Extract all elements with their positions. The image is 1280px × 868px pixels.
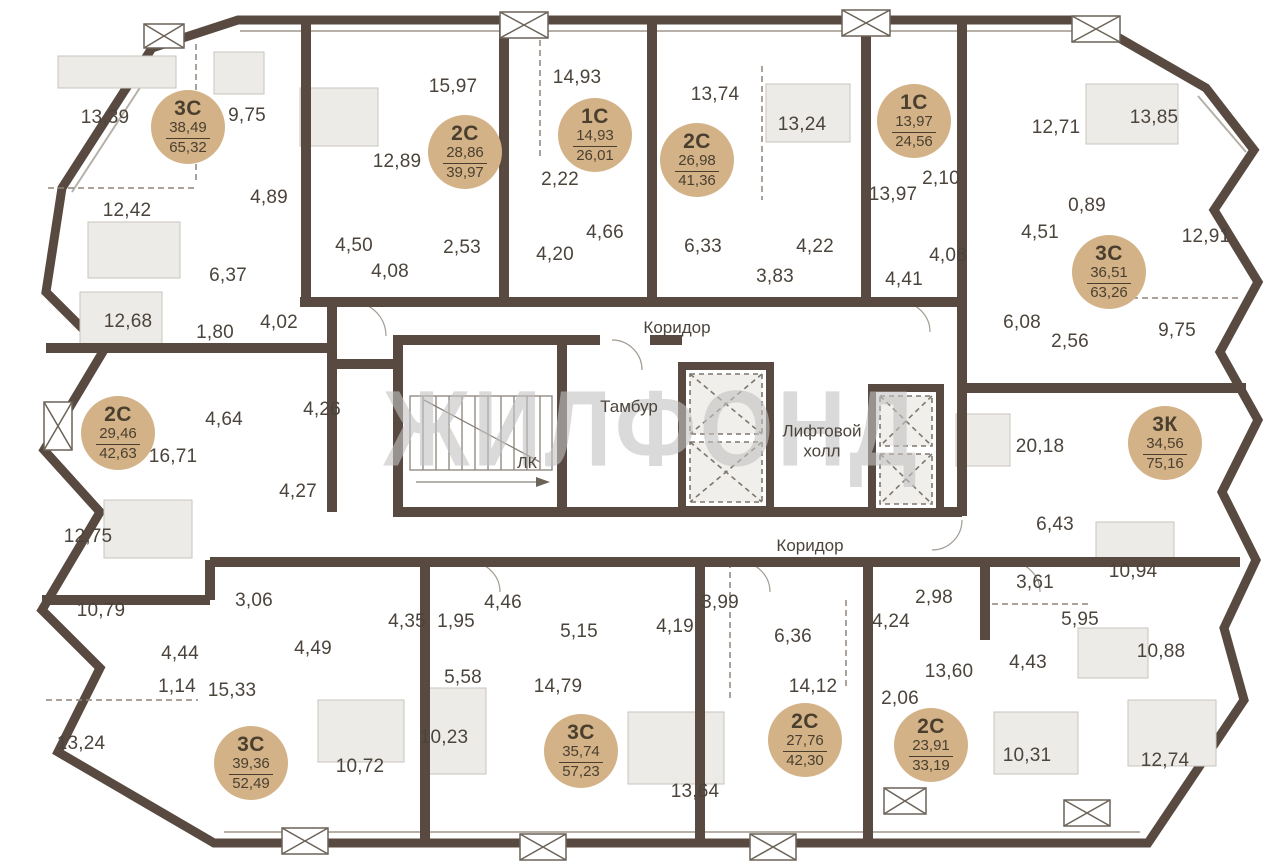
apartment-living-area: 23,91 — [909, 738, 953, 757]
room-area-label: 6,37 — [209, 265, 247, 287]
apartment-badge[interactable]: 2С23,9133,19 — [894, 708, 968, 782]
room-area-label: 4,20 — [536, 244, 574, 266]
room-area-label: 1,14 — [158, 676, 196, 698]
tambour-label: Тамбур — [594, 397, 664, 417]
room-area-label: 4,51 — [1021, 222, 1059, 244]
room-area-label: 13,24 — [57, 733, 106, 755]
room-area-label: 6,43 — [1036, 514, 1074, 536]
room-area-label: 4,02 — [260, 312, 298, 334]
apartment-total-area: 39,97 — [446, 164, 484, 182]
corridor-top-label: Коридор — [643, 318, 710, 338]
room-area-label: 1,95 — [437, 611, 475, 633]
room-area-label: 2,10 — [922, 168, 960, 190]
apartment-total-area: 57,23 — [562, 763, 600, 781]
apartment-type: 3С — [567, 721, 595, 745]
apartment-living-area: 39,36 — [229, 756, 273, 775]
room-area-label: 3,61 — [1016, 572, 1054, 594]
apartment-type: 1С — [900, 91, 928, 115]
apartment-living-area: 29,46 — [96, 426, 140, 445]
room-area-label: 10,31 — [1003, 745, 1052, 767]
room-area-label: 4,35 — [388, 611, 426, 633]
apartment-type: 2С — [104, 403, 132, 427]
room-area-label: 15,97 — [429, 76, 478, 98]
apartment-badge[interactable]: 3С39,3652,49 — [214, 726, 288, 800]
room-area-label: 14,93 — [553, 67, 602, 89]
room-area-label: 0,89 — [1068, 195, 1106, 217]
room-area-label: 13,97 — [869, 184, 918, 206]
apartment-total-area: 52,49 — [232, 775, 270, 793]
apartment-badge[interactable]: 1С13,9724,56 — [877, 84, 951, 158]
room-area-label: 4,66 — [586, 222, 624, 244]
apartment-total-area: 42,63 — [99, 445, 137, 463]
room-area-label: 10,72 — [336, 756, 385, 778]
apartment-living-area: 28,86 — [443, 145, 487, 164]
room-area-label: 4,89 — [250, 187, 288, 209]
apartment-living-area: 27,76 — [783, 733, 827, 752]
apartment-badge[interactable]: 3С35,7457,23 — [544, 714, 618, 788]
apartment-total-area: 26,01 — [576, 147, 614, 165]
apartment-living-area: 38,49 — [166, 120, 210, 139]
room-area-label: 3,06 — [235, 590, 273, 612]
room-area-label: 13,60 — [925, 661, 974, 683]
room-area-label: 3,83 — [756, 266, 794, 288]
room-area-label: 12,91 — [1182, 226, 1231, 248]
room-area-label: 2,06 — [881, 688, 919, 710]
apartment-type: 1С — [581, 105, 609, 129]
room-area-label: 12,68 — [104, 311, 153, 333]
room-area-label: 1,80 — [196, 322, 234, 344]
room-area-label: 3,99 — [701, 592, 739, 614]
room-area-label: 9,75 — [228, 105, 266, 127]
apartment-total-area: 75,16 — [1146, 455, 1184, 473]
floorplan-stage: ЖИЛФОНД Коридор Коридор Тамбур Лифтовой … — [0, 0, 1280, 868]
room-area-label: 10,88 — [1137, 641, 1186, 663]
room-area-label: 4,50 — [335, 235, 373, 257]
apartment-type: 2С — [683, 130, 711, 154]
room-area-label: 6,33 — [684, 236, 722, 258]
room-area-label: 5,95 — [1061, 609, 1099, 631]
room-area-label: 5,15 — [560, 621, 598, 643]
room-area-label: 13,74 — [691, 84, 740, 106]
stairs-label: ЛК — [517, 455, 537, 473]
room-area-label: 4,46 — [484, 592, 522, 614]
apartment-badge[interactable]: 2С29,4642,63 — [81, 396, 155, 470]
room-area-label: 6,08 — [1003, 312, 1041, 334]
apartment-type: 3С — [1095, 242, 1123, 266]
room-area-label: 14,79 — [534, 676, 583, 698]
apartment-type: 3С — [174, 97, 202, 121]
room-area-label: 12,74 — [1141, 750, 1190, 772]
room-area-label: 2,22 — [541, 169, 579, 191]
apartment-type: 3К — [1152, 413, 1178, 437]
room-area-label: 13,24 — [778, 114, 827, 136]
room-area-label: 16,71 — [149, 446, 198, 468]
apartment-total-area: 33,19 — [912, 757, 950, 775]
apartment-badge[interactable]: 3С36,5163,26 — [1072, 235, 1146, 309]
room-area-label: 12,75 — [64, 526, 113, 548]
room-area-label: 10,94 — [1109, 561, 1158, 583]
apartment-type: 3С — [237, 733, 265, 757]
apartment-badge[interactable]: 2С26,9841,36 — [660, 123, 734, 197]
room-area-label: 4,08 — [929, 245, 967, 267]
room-area-label: 4,44 — [161, 643, 199, 665]
room-area-label: 9,75 — [1158, 320, 1196, 342]
room-area-label: 14,12 — [789, 676, 838, 698]
apartment-living-area: 36,51 — [1087, 265, 1131, 284]
room-area-label: 15,33 — [208, 680, 257, 702]
apartment-type: 2С — [917, 715, 945, 739]
room-area-label: 4,26 — [303, 399, 341, 421]
room-area-label: 13,39 — [81, 107, 130, 129]
apartment-type: 2С — [451, 122, 479, 146]
room-area-label: 13,85 — [1130, 107, 1179, 129]
room-area-label: 13,64 — [671, 781, 720, 803]
room-area-label: 4,24 — [872, 611, 910, 633]
room-area-label: 12,42 — [103, 200, 152, 222]
elevator-hall-label: Лифтовой холл — [772, 421, 872, 460]
apartment-total-area: 42,30 — [786, 752, 824, 770]
room-area-label: 4,27 — [279, 481, 317, 503]
room-area-label: 12,89 — [373, 151, 422, 173]
room-area-label: 12,71 — [1032, 117, 1081, 139]
apartment-total-area: 24,56 — [895, 133, 933, 151]
apartment-badge[interactable]: 3С38,4965,32 — [151, 90, 225, 164]
apartment-badge[interactable]: 1С14,9326,01 — [558, 98, 632, 172]
labels-layer: Коридор Коридор Тамбур Лифтовой холл ЛК … — [0, 0, 1280, 868]
room-area-label: 4,41 — [885, 269, 923, 291]
apartment-living-area: 34,56 — [1143, 436, 1187, 455]
apartment-living-area: 35,74 — [559, 744, 603, 763]
room-area-label: 2,56 — [1051, 331, 1089, 353]
apartment-total-area: 63,26 — [1090, 284, 1128, 302]
room-area-label: 5,58 — [444, 667, 482, 689]
room-area-label: 4,49 — [294, 638, 332, 660]
room-area-label: 20,18 — [1016, 436, 1065, 458]
room-area-label: 4,43 — [1009, 652, 1047, 674]
room-area-label: 4,64 — [205, 409, 243, 431]
apartment-total-area: 65,32 — [169, 139, 207, 157]
corridor-bottom-label: Коридор — [776, 536, 843, 556]
room-area-label: 4,22 — [796, 236, 834, 258]
room-area-label: 4,08 — [371, 261, 409, 283]
apartment-living-area: 13,97 — [892, 114, 936, 133]
room-area-label: 10,79 — [77, 600, 126, 622]
apartment-total-area: 41,36 — [678, 172, 716, 190]
room-area-label: 10,23 — [420, 727, 469, 749]
apartment-badge[interactable]: 2С28,8639,97 — [428, 115, 502, 189]
room-area-label: 6,36 — [774, 626, 812, 648]
apartment-badge[interactable]: 3К34,5675,16 — [1128, 406, 1202, 480]
room-area-label: 2,98 — [915, 587, 953, 609]
room-area-label: 4,19 — [656, 616, 694, 638]
apartment-living-area: 14,93 — [573, 128, 617, 147]
room-area-label: 2,53 — [443, 237, 481, 259]
apartment-type: 2С — [791, 710, 819, 734]
apartment-living-area: 26,98 — [675, 153, 719, 172]
apartment-badge[interactable]: 2С27,7642,30 — [768, 703, 842, 777]
